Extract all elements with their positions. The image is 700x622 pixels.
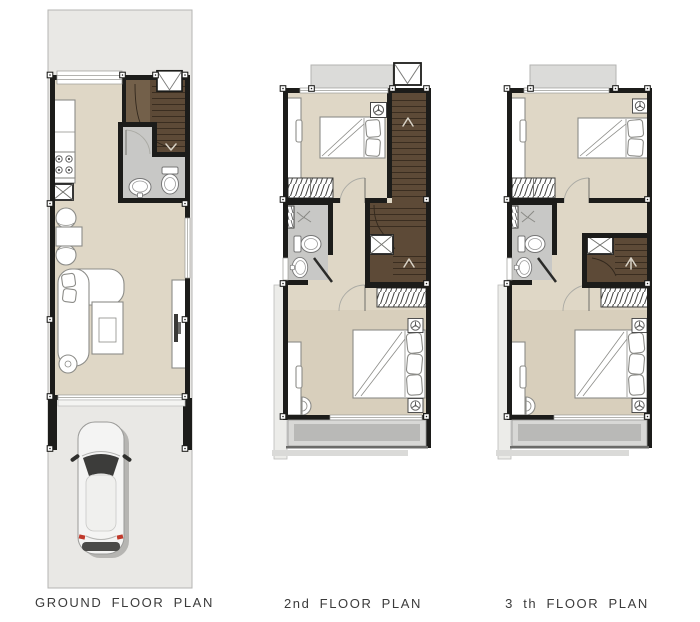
desk <box>520 366 526 388</box>
desk <box>296 366 302 388</box>
car <box>70 422 132 558</box>
second-floor-plan <box>270 52 436 464</box>
ground-floor-plan <box>40 8 200 593</box>
ceiling-fan-icon <box>408 398 423 412</box>
pillow <box>628 332 645 353</box>
balcony <box>272 420 428 456</box>
pillow <box>365 139 380 157</box>
canopy <box>530 65 616 89</box>
ceiling-fan-icon <box>408 318 423 332</box>
coffee-table <box>92 302 123 354</box>
wardrobe <box>377 288 426 307</box>
stove <box>53 152 75 178</box>
ac-condenser-icon <box>157 71 182 91</box>
floor-plans-page: GROUND FLOOR PLAN 2nd FLOOR PLAN 3 th FL… <box>0 0 700 622</box>
pillow <box>628 374 644 395</box>
bathroom <box>285 205 332 282</box>
toilet <box>518 236 545 253</box>
pillow <box>627 119 643 137</box>
dining-table <box>56 227 82 246</box>
balcony <box>496 420 649 456</box>
pillow <box>406 353 423 374</box>
tv <box>174 314 178 342</box>
gate-post <box>48 398 57 450</box>
kitchen <box>53 100 75 200</box>
toilet <box>162 167 179 194</box>
desk <box>296 120 302 142</box>
second-floor-plan-label: 2nd FLOOR PLAN <box>268 596 438 611</box>
toilet <box>294 236 321 253</box>
bathroom <box>509 205 556 282</box>
pillow <box>365 119 380 137</box>
third-floor-plan-label: 3 th FLOOR PLAN <box>492 596 662 611</box>
ceiling-fan-icon <box>632 318 647 332</box>
dining-chair <box>56 208 76 228</box>
sofa-pillow <box>62 288 76 302</box>
ceiling-fan-icon <box>632 99 647 113</box>
desk <box>520 120 526 142</box>
staircase <box>587 236 650 282</box>
ceiling-fan-icon <box>632 398 647 412</box>
car-roof <box>86 475 116 531</box>
ceiling-fan-icon <box>371 103 387 118</box>
ground-floor-plan-label: GROUND FLOOR PLAN <box>35 595 205 610</box>
dining-chair <box>56 245 76 265</box>
rear-bumper <box>82 542 120 551</box>
pillow <box>627 139 643 157</box>
pillow <box>406 332 423 353</box>
pillow <box>406 374 422 395</box>
pillow <box>628 353 645 374</box>
sofa-pillow <box>61 273 76 288</box>
wardrobe <box>601 288 650 307</box>
third-floor-plan <box>494 52 660 464</box>
canopy <box>311 65 393 89</box>
round-stool <box>59 355 77 373</box>
windshield <box>83 454 119 476</box>
ac-condenser-icon <box>394 63 421 85</box>
